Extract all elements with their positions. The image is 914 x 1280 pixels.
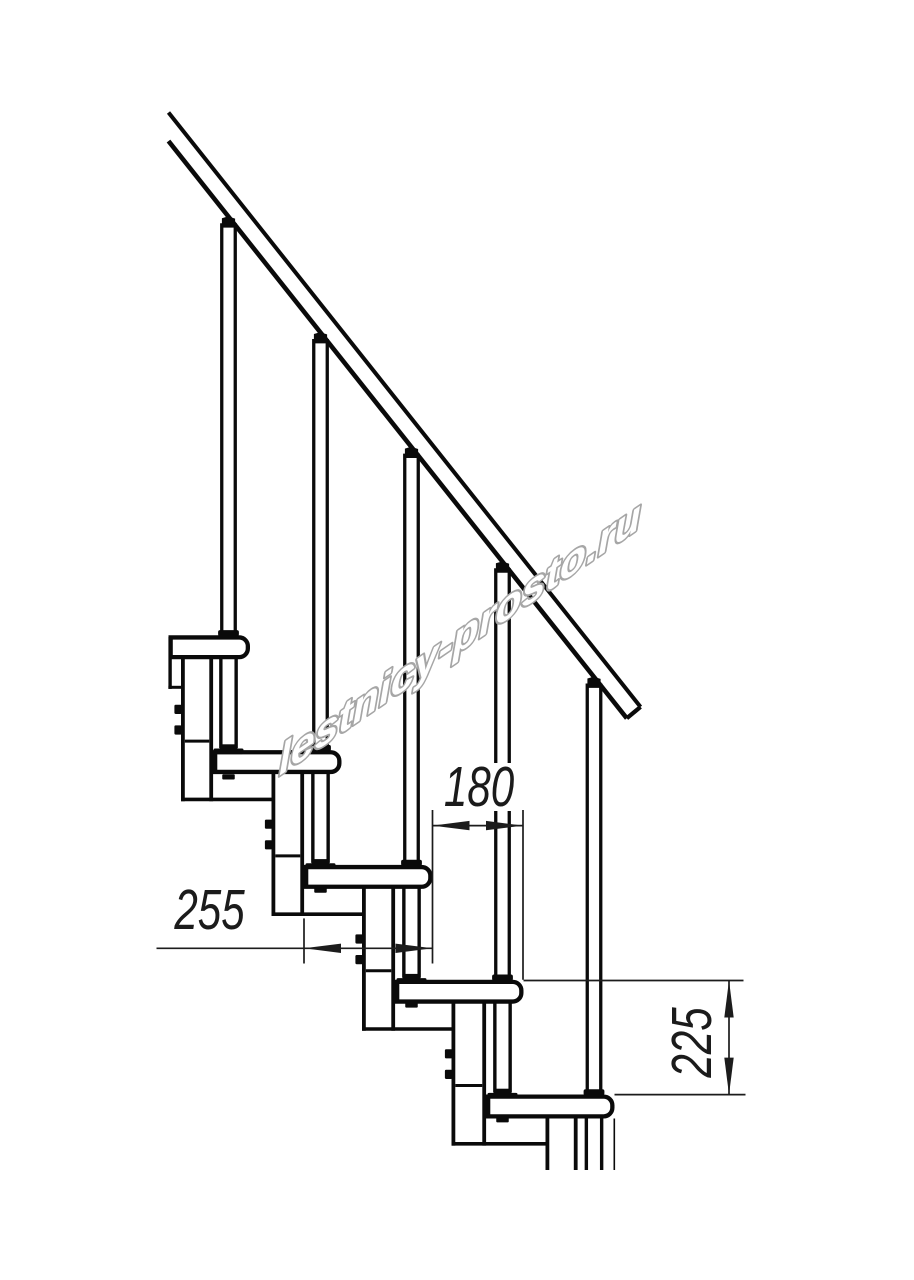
svg-text:255: 255 [173, 878, 244, 942]
svg-text:225: 225 [660, 1007, 724, 1078]
svg-text:180: 180 [444, 755, 514, 819]
